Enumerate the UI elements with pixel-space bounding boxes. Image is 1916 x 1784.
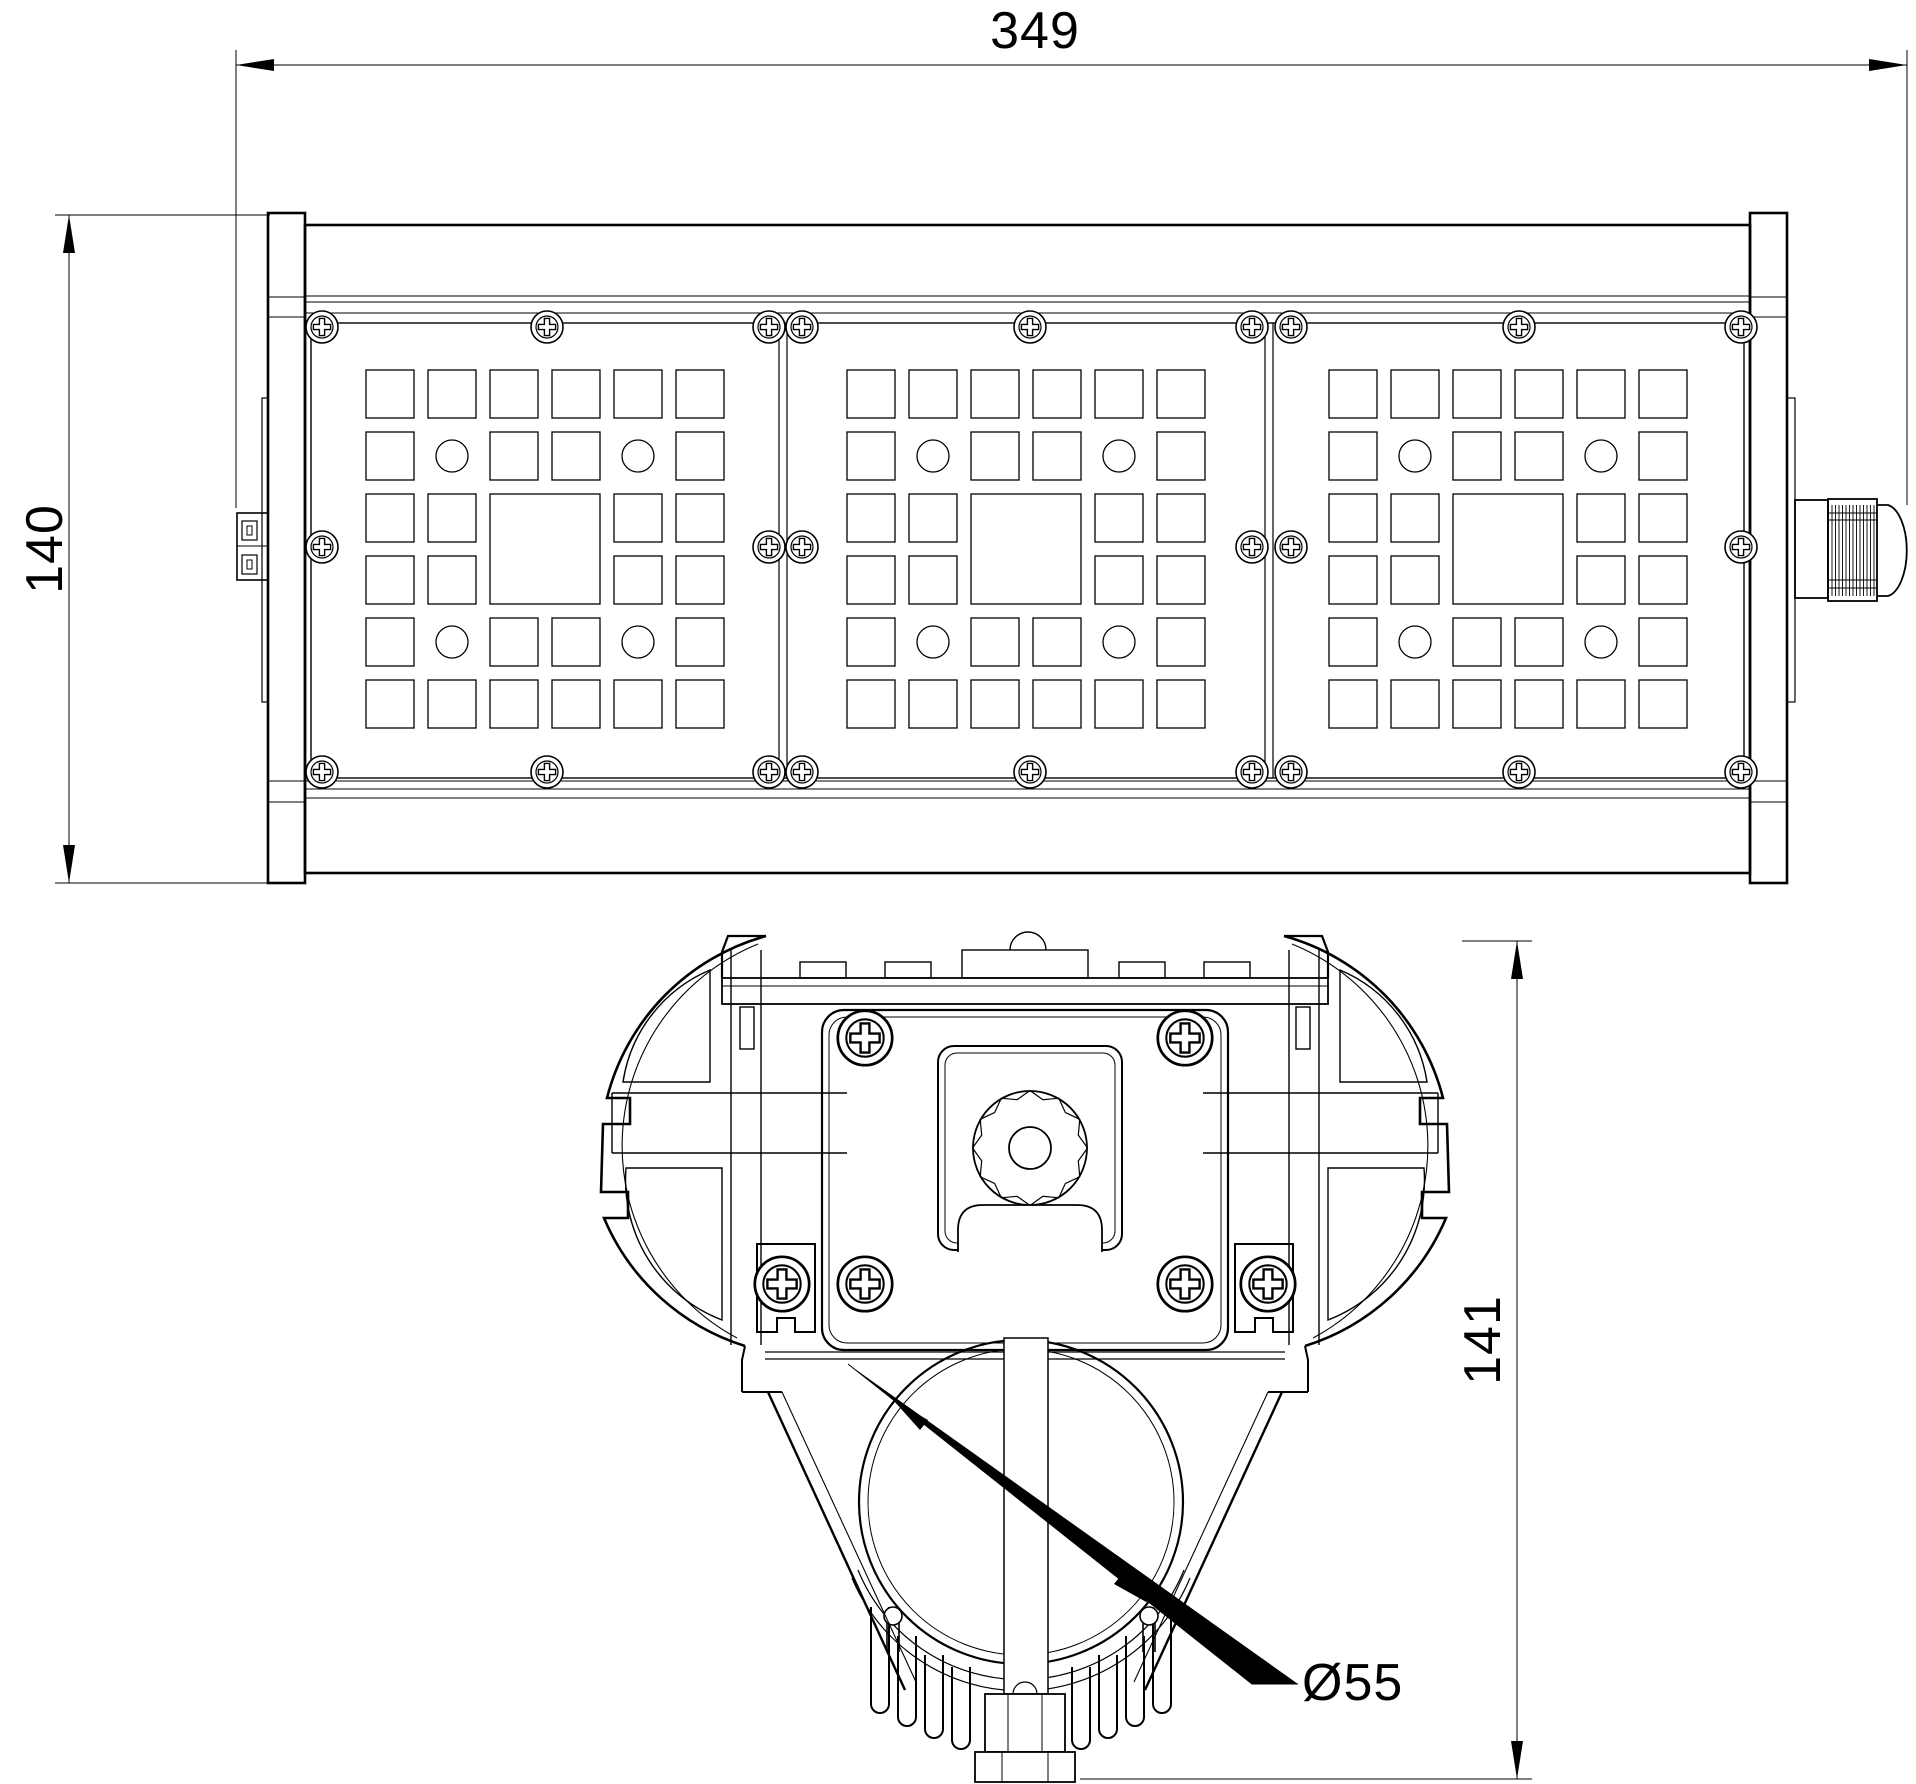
lens-square (552, 432, 600, 480)
lens-square (971, 618, 1019, 666)
lens-square (366, 432, 414, 480)
phillips-screw-icon (1158, 1257, 1212, 1311)
lens-square (971, 370, 1019, 418)
front-view (237, 213, 1907, 883)
lens-square (1095, 370, 1143, 418)
lens-circle (436, 440, 468, 472)
lens-square (676, 618, 724, 666)
lens-square-large (971, 494, 1081, 604)
lens-circle (1399, 626, 1431, 658)
lens-circle (917, 440, 949, 472)
lens-square (1095, 556, 1143, 604)
lens-panel (311, 323, 1744, 778)
lens-square (1453, 432, 1501, 480)
lens-square (1157, 494, 1205, 542)
lens-square (909, 680, 957, 728)
heatsink-fin (1099, 1655, 1117, 1738)
dim-section-height-label: 141 (1454, 1295, 1512, 1385)
heatsink-fin (952, 1667, 970, 1749)
led-module-1 (366, 370, 724, 728)
dim-width-label: 349 (990, 2, 1080, 60)
lens-square (366, 494, 414, 542)
lens-square (847, 556, 895, 604)
swivel-knob (973, 1091, 1087, 1205)
lens-square (1157, 370, 1205, 418)
phillips-screw-icon (531, 756, 563, 788)
lens-square (552, 370, 600, 418)
phillips-screw-icon (306, 311, 338, 343)
lens-square (1329, 432, 1377, 480)
lens-square (676, 680, 724, 728)
phillips-screw-icon (1725, 311, 1757, 343)
lens-square (1033, 370, 1081, 418)
lens-square (1639, 680, 1687, 728)
phillips-screw-icon (306, 756, 338, 788)
phillips-screw-icon (755, 1257, 809, 1311)
lens-square (1515, 618, 1563, 666)
lens-square (847, 432, 895, 480)
cad-drawing: 349 140 (0, 0, 1916, 1784)
lens-square (676, 432, 724, 480)
lens-square (676, 556, 724, 604)
lens-square (847, 494, 895, 542)
lens-square (1329, 370, 1377, 418)
lens-square (366, 618, 414, 666)
left-end-cap (268, 213, 305, 883)
lens-circle (1399, 440, 1431, 472)
phillips-screw-icon (753, 311, 785, 343)
lens-square (1033, 432, 1081, 480)
lens-circle (1103, 626, 1135, 658)
lens-square (614, 494, 662, 542)
mounting-bar (722, 932, 1328, 1004)
lens-square (847, 370, 895, 418)
phillips-screw-icon (1241, 1257, 1295, 1311)
lens-square (1095, 494, 1143, 542)
lens-square (490, 370, 538, 418)
lens-square (1639, 494, 1687, 542)
section-screws (755, 1011, 1295, 1311)
lens-square-large (1453, 494, 1563, 604)
dim-height-label: 140 (16, 504, 74, 594)
lens-square (366, 680, 414, 728)
phillips-screw-icon (1725, 756, 1757, 788)
lens-square (1329, 494, 1377, 542)
lens-square (909, 494, 957, 542)
phillips-screw-icon (1275, 311, 1307, 343)
dimension-140: 140 (16, 215, 284, 883)
lens-square (366, 556, 414, 604)
lens-circle (622, 440, 654, 472)
lens-square-large (490, 494, 600, 604)
lens-square (614, 370, 662, 418)
phillips-screw-icon (1503, 311, 1535, 343)
terminal-connector (237, 513, 268, 580)
lens-square (1157, 680, 1205, 728)
lens-square (1157, 432, 1205, 480)
lens-square (552, 680, 600, 728)
phillips-screw-icon (1236, 311, 1268, 343)
phillips-screw-icon (838, 1011, 892, 1065)
keyhole-slot (884, 1607, 902, 1625)
lens-square (552, 618, 600, 666)
bottom-clamp (975, 1682, 1075, 1782)
phillips-screw-icon (786, 311, 818, 343)
led-module-3 (1329, 370, 1687, 728)
lens-square (847, 618, 895, 666)
lens-square (1639, 432, 1687, 480)
lens-square (676, 370, 724, 418)
lens-square (366, 370, 414, 418)
phillips-screw-icon (1236, 531, 1268, 563)
lens-square (1157, 618, 1205, 666)
led-module-2 (847, 370, 1205, 728)
lens-circle (1585, 626, 1617, 658)
phillips-screw-icon (1275, 531, 1307, 563)
cable-gland (1795, 499, 1907, 601)
lens-circle (1103, 440, 1135, 472)
lens-square (909, 556, 957, 604)
lens-square (428, 556, 476, 604)
lens-square (428, 370, 476, 418)
lens-square (909, 370, 957, 418)
lens-square (1329, 680, 1377, 728)
heatsink-fin (925, 1655, 943, 1738)
lens-square (1515, 680, 1563, 728)
lens-square (490, 618, 538, 666)
lens-square (1639, 618, 1687, 666)
lens-square (1391, 494, 1439, 542)
technical-drawing-canvas: 349 140 (0, 0, 1916, 1784)
phillips-screw-icon (753, 756, 785, 788)
lens-square (1453, 618, 1501, 666)
lens-square (1095, 680, 1143, 728)
lens-square (490, 680, 538, 728)
lens-square (1515, 370, 1563, 418)
module-seams (779, 323, 1273, 778)
lens-square (428, 494, 476, 542)
lens-square (1515, 432, 1563, 480)
phillips-screw-icon (531, 311, 563, 343)
lens-square (428, 680, 476, 728)
lens-square (490, 432, 538, 480)
lens-square (1453, 370, 1501, 418)
lens-square (1639, 370, 1687, 418)
phillips-screw-icon (1014, 756, 1046, 788)
phillips-screw-icon (1725, 531, 1757, 563)
lens-square (614, 680, 662, 728)
led-modules (366, 370, 1687, 728)
lens-square (1577, 556, 1625, 604)
phillips-screw-icon (838, 1257, 892, 1311)
heatsink-fin (1072, 1667, 1090, 1749)
phillips-screw-icon (306, 531, 338, 563)
lens-square (1329, 618, 1377, 666)
lens-square (971, 680, 1019, 728)
phillips-screw-icon (1503, 756, 1535, 788)
phillips-screw-icon (786, 756, 818, 788)
lens-square (1157, 556, 1205, 604)
lens-square (1329, 556, 1377, 604)
lens-circle (917, 626, 949, 658)
lens-square (1639, 556, 1687, 604)
lens-square (1033, 618, 1081, 666)
phillips-screw-icon (1158, 1011, 1212, 1065)
lens-square (676, 494, 724, 542)
lens-circle (1585, 440, 1617, 472)
lens-square (1033, 680, 1081, 728)
phillips-screw-icon (786, 531, 818, 563)
lens-square (1453, 680, 1501, 728)
phillips-screw-icon (1014, 311, 1046, 343)
lens-circle (622, 626, 654, 658)
lens-square (1577, 370, 1625, 418)
lens-square (847, 680, 895, 728)
lens-square (1391, 370, 1439, 418)
phillips-screw-icon (1275, 756, 1307, 788)
lens-square (971, 432, 1019, 480)
lens-square (1391, 680, 1439, 728)
lens-square (614, 556, 662, 604)
lens-square (1577, 680, 1625, 728)
lens-square (1577, 494, 1625, 542)
lens-circle (436, 626, 468, 658)
phillips-screw-icon (1236, 756, 1268, 788)
keyhole-slot (1140, 1607, 1158, 1625)
lens-square (1391, 556, 1439, 604)
dim-diameter-label: Ø55 (1302, 1654, 1403, 1712)
phillips-screw-icon (753, 531, 785, 563)
front-screws (306, 311, 1757, 788)
